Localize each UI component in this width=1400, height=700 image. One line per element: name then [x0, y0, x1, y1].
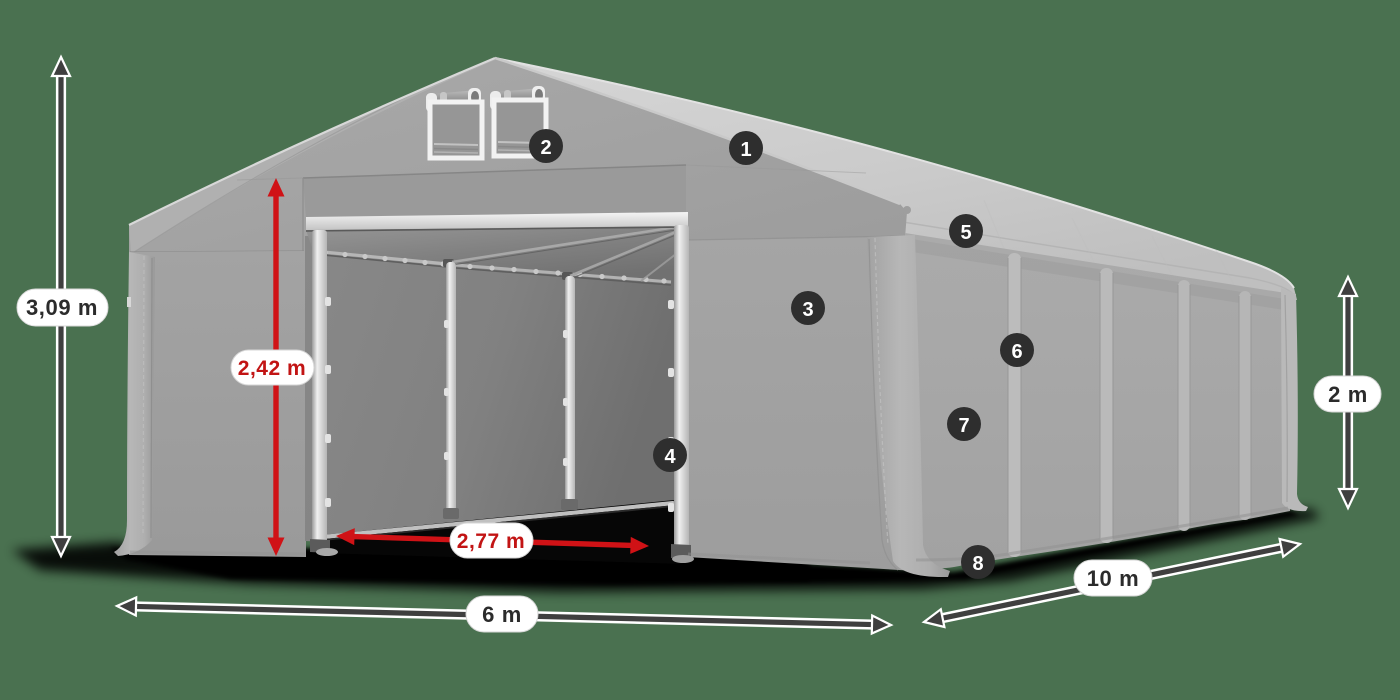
- svg-text:2 m: 2 m: [1328, 382, 1368, 407]
- svg-text:10 m: 10 m: [1087, 566, 1140, 591]
- svg-text:3,09 m: 3,09 m: [26, 295, 98, 320]
- svg-text:4: 4: [664, 446, 676, 468]
- svg-text:8: 8: [972, 553, 983, 575]
- svg-text:5: 5: [960, 222, 971, 244]
- svg-text:7: 7: [958, 415, 969, 437]
- svg-text:6: 6: [1011, 341, 1022, 363]
- svg-text:2,42 m: 2,42 m: [238, 357, 306, 380]
- svg-text:3: 3: [802, 299, 813, 321]
- svg-text:2,77 m: 2,77 m: [457, 530, 525, 553]
- svg-text:6 m: 6 m: [482, 602, 522, 627]
- svg-text:2: 2: [540, 137, 551, 159]
- svg-text:1: 1: [740, 139, 751, 161]
